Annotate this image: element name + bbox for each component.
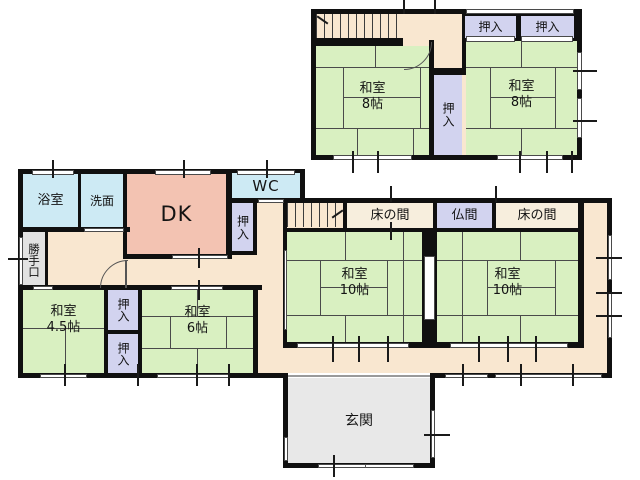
room-label: DK bbox=[161, 206, 193, 222]
room-name: 和室 bbox=[50, 304, 76, 320]
dimension-tick bbox=[333, 455, 335, 477]
dimension-tick bbox=[520, 364, 522, 386]
room-label: 和室 4.5帖 bbox=[47, 304, 81, 336]
dimension-tick bbox=[478, 336, 480, 362]
dimension-tick bbox=[403, 0, 405, 14]
wall bbox=[607, 198, 612, 378]
closet-label: 押入 bbox=[235, 215, 251, 241]
sliding-door bbox=[466, 36, 515, 42]
room-name: 和室 bbox=[508, 79, 534, 95]
tatami-line bbox=[462, 232, 463, 342]
dimension-tick bbox=[535, 336, 537, 362]
room-dk: DK bbox=[127, 174, 226, 254]
sliding-door bbox=[424, 256, 435, 320]
wall bbox=[578, 203, 584, 348]
dimension-tick bbox=[507, 336, 509, 362]
dimension-tick bbox=[228, 364, 230, 386]
room-washitsu-8-right: 和室 8帖 bbox=[466, 41, 577, 155]
tatami-line bbox=[413, 128, 414, 155]
room-size: 8帖 bbox=[362, 97, 383, 113]
room-size: 10帖 bbox=[493, 283, 523, 299]
window bbox=[495, 374, 602, 378]
door-gap bbox=[258, 199, 284, 203]
room-katteguchi: 勝手口 bbox=[23, 232, 45, 288]
dimension-tick bbox=[387, 336, 389, 362]
window bbox=[157, 374, 230, 378]
room-label: WC bbox=[252, 178, 279, 194]
room-label: 和室 10帖 bbox=[340, 267, 370, 299]
tatami-line bbox=[520, 315, 521, 342]
door-gap bbox=[33, 286, 53, 290]
room-bathroom: 浴室 bbox=[23, 174, 78, 227]
tatami-line bbox=[287, 315, 422, 316]
dimension-tick bbox=[519, 151, 521, 173]
dimension-tick bbox=[573, 120, 597, 122]
closet-label: 押入 bbox=[440, 102, 456, 128]
dimension-tick bbox=[434, 0, 436, 14]
wall bbox=[311, 38, 403, 46]
window bbox=[284, 437, 288, 461]
dimension-tick bbox=[358, 336, 360, 362]
window bbox=[497, 155, 563, 160]
dimension-tick bbox=[390, 222, 392, 240]
alcove-tokonoma-right: 床の間 bbox=[496, 203, 578, 228]
wall bbox=[253, 285, 258, 378]
window bbox=[577, 98, 582, 138]
wall bbox=[429, 68, 466, 75]
dimension-tick bbox=[424, 434, 450, 436]
closet-label: 押入 bbox=[115, 342, 131, 366]
back-door bbox=[19, 237, 23, 285]
dimension-tick bbox=[596, 257, 622, 259]
room-size: 6帖 bbox=[187, 321, 208, 337]
closet-oshiire-sw-top: 押入 bbox=[108, 290, 138, 330]
room-name: 和室 bbox=[341, 267, 367, 283]
dimension-tick bbox=[495, 186, 497, 202]
wall bbox=[253, 203, 257, 255]
door-leaf bbox=[125, 260, 127, 288]
room-name: 和室 bbox=[184, 305, 210, 321]
dimension-tick bbox=[352, 151, 354, 173]
sliding-door bbox=[284, 250, 287, 330]
tatami-line bbox=[387, 260, 388, 315]
dimension-tick bbox=[266, 160, 268, 178]
room-label: 洗面 bbox=[90, 193, 114, 209]
room-washitsu-6: 和室 6帖 bbox=[142, 290, 253, 373]
dimension-tick bbox=[390, 186, 392, 202]
wall bbox=[232, 251, 257, 255]
room-label: 和室 8帖 bbox=[359, 81, 385, 113]
room-size: 8帖 bbox=[511, 95, 532, 111]
dimension-tick bbox=[596, 292, 622, 294]
tatami-line bbox=[437, 260, 578, 261]
room-name: 和室 bbox=[494, 267, 520, 283]
tatami-line bbox=[520, 232, 521, 260]
dimension-tick bbox=[573, 70, 597, 72]
entrance-door-divider bbox=[365, 464, 366, 468]
dimension-tick bbox=[64, 364, 66, 386]
closet-label: 押入 bbox=[535, 19, 559, 35]
door-gap bbox=[84, 228, 124, 232]
closet-oshiire-hall: 押入 bbox=[232, 203, 253, 252]
room-butsuma: 仏間 bbox=[437, 203, 492, 228]
room-label: 和室 8帖 bbox=[508, 79, 534, 111]
window bbox=[333, 155, 412, 160]
sliding-door bbox=[297, 343, 409, 348]
room-label: 仏間 bbox=[451, 208, 477, 224]
genkan-step-line bbox=[288, 375, 430, 377]
room-washitsu-10-right: 和室 10帖 bbox=[437, 232, 578, 342]
room-label: 玄関 bbox=[345, 413, 373, 429]
wall bbox=[123, 169, 127, 258]
tatami-line bbox=[357, 128, 358, 155]
dimension-tick bbox=[572, 364, 574, 386]
dimension-tick bbox=[596, 315, 622, 317]
window bbox=[466, 9, 574, 14]
floor2-staircase bbox=[316, 14, 403, 38]
room-label: 和室 6帖 bbox=[184, 305, 210, 337]
dimension-tick bbox=[462, 364, 464, 386]
tatami-line bbox=[521, 128, 522, 155]
door-gap bbox=[172, 255, 228, 259]
dimension-tick bbox=[332, 336, 334, 362]
dimension-tick bbox=[546, 151, 548, 173]
tatami-line bbox=[287, 260, 422, 261]
room-washitsu-10-left: 和室 10帖 bbox=[287, 232, 422, 342]
dimension-tick bbox=[377, 151, 379, 173]
window bbox=[445, 374, 488, 378]
room-size: 4.5帖 bbox=[47, 320, 81, 336]
dimension-tick bbox=[198, 280, 200, 300]
closet-oshiire-sw-bottom: 押入 bbox=[108, 334, 138, 373]
room-label: 和室 10帖 bbox=[493, 267, 523, 299]
tatami-line bbox=[555, 260, 556, 315]
dimension-tick bbox=[8, 258, 28, 260]
room-washroom: 洗面 bbox=[81, 174, 123, 227]
tatami-line bbox=[170, 316, 171, 348]
closet-label: 押入 bbox=[478, 19, 502, 35]
dimension-tick bbox=[196, 364, 198, 386]
tatami-line bbox=[375, 46, 376, 67]
sliding-door bbox=[450, 343, 568, 348]
room-name: 和室 bbox=[359, 81, 385, 97]
tatami-line bbox=[403, 232, 404, 342]
dimension-tick bbox=[137, 364, 139, 386]
dimension-tick bbox=[198, 248, 200, 268]
door-gap bbox=[171, 286, 223, 290]
dimension-tick bbox=[183, 160, 185, 178]
room-label: 勝手口 bbox=[26, 243, 42, 278]
room-size: 10帖 bbox=[340, 283, 370, 299]
tatami-line bbox=[521, 41, 522, 67]
tatami-line bbox=[345, 315, 346, 342]
closet-oshiire-center-2f: 押入 bbox=[434, 75, 462, 155]
tatami-line bbox=[226, 316, 227, 348]
room-label: 浴室 bbox=[37, 193, 63, 209]
closet-label: 押入 bbox=[115, 298, 131, 322]
room-washitsu-45: 和室 4.5帖 bbox=[23, 290, 104, 373]
sliding-door bbox=[521, 36, 573, 42]
floor-plan-canvas: 和室 8帖 和室 8帖 押入 押入 押入 bbox=[0, 0, 640, 480]
dimension-tick bbox=[571, 151, 573, 173]
alcove-label: 床の間 bbox=[517, 208, 556, 224]
tatami-line bbox=[466, 67, 577, 68]
wall bbox=[45, 232, 48, 288]
dimension-tick bbox=[52, 160, 54, 178]
tatami-line bbox=[437, 315, 578, 316]
room-genkan: 玄関 bbox=[288, 378, 430, 463]
tatami-line bbox=[345, 232, 346, 260]
